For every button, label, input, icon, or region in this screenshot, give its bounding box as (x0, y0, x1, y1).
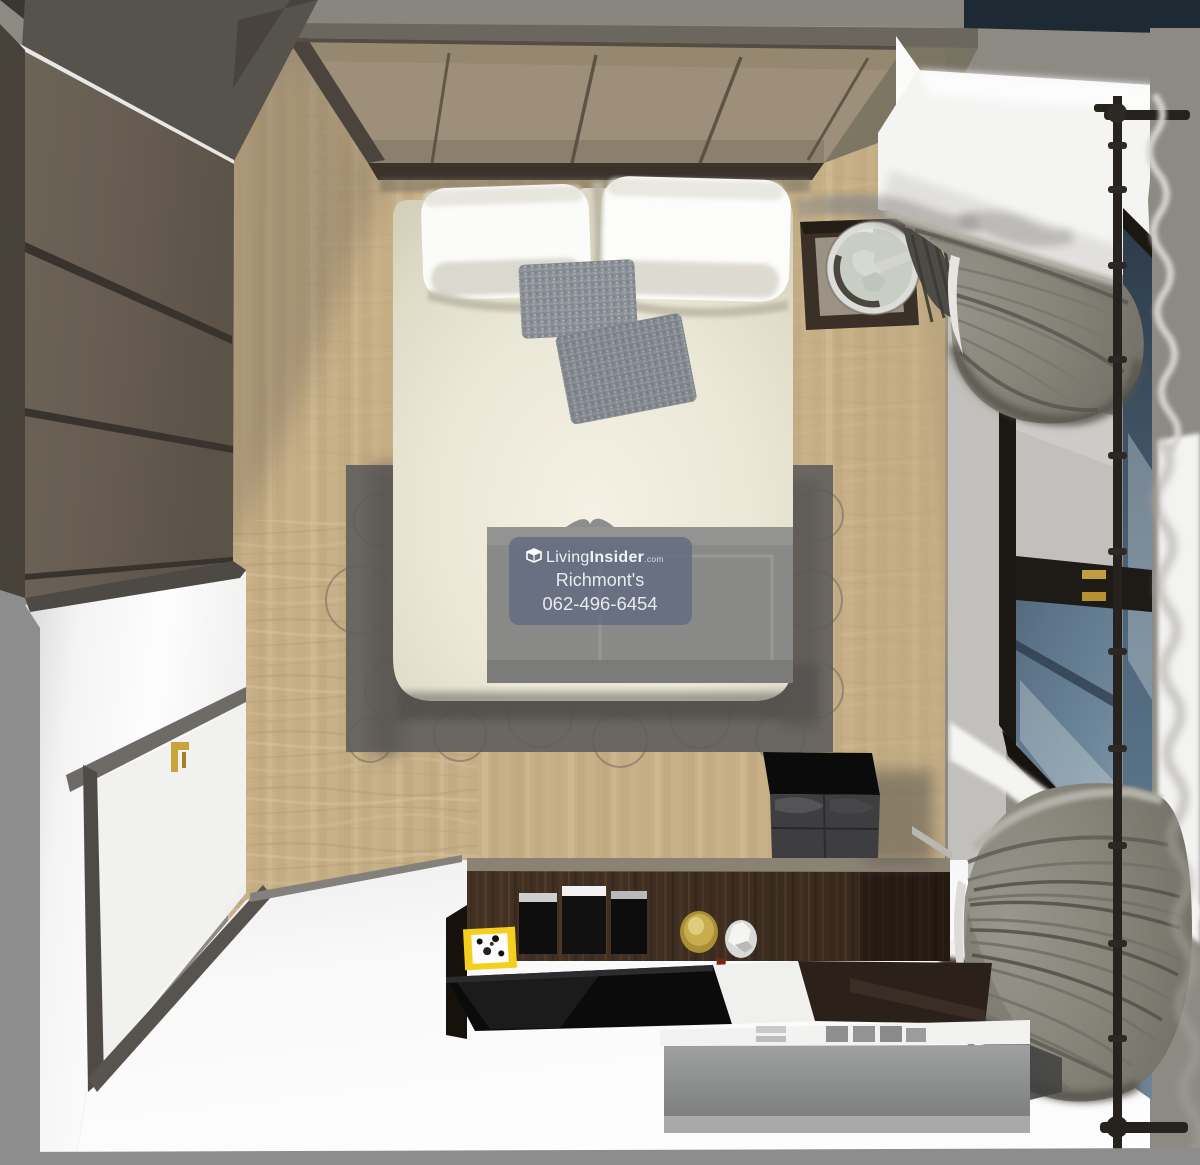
svg-text:Richmont's: Richmont's (556, 570, 644, 590)
svg-text:062-496-6454: 062-496-6454 (542, 593, 657, 614)
